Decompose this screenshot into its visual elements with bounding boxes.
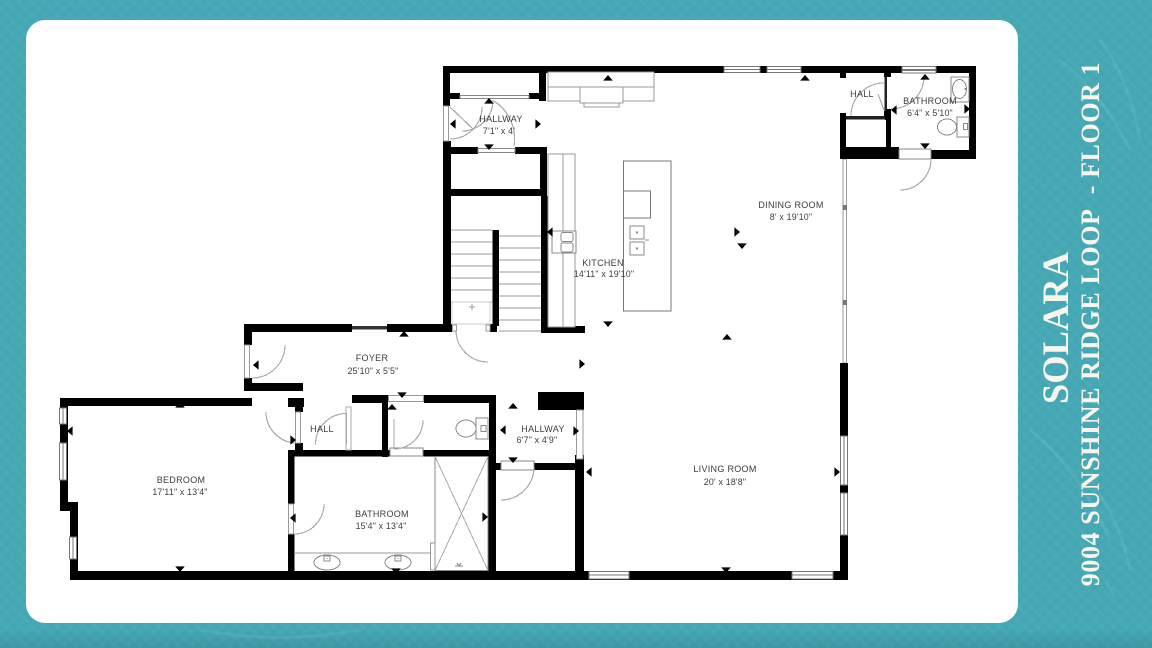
svg-text:HALL: HALL [850,89,874,99]
svg-text:KITCHEN: KITCHEN [582,258,624,268]
svg-text:HALLWAY: HALLWAY [521,424,564,434]
svg-text:9004 SUNSHINE RIDGE LOOP - FL: 9004 SUNSHINE RIDGE LOOP - FLOOR 1 [1076,62,1105,586]
svg-text:DINING ROOM: DINING ROOM [758,200,823,210]
svg-text:BATHROOM: BATHROOM [355,509,409,519]
svg-text:8' x 19'10": 8' x 19'10" [770,212,812,222]
svg-text:15'4" x 13'4": 15'4" x 13'4" [356,521,407,531]
svg-text:HALLWAY: HALLWAY [479,114,522,124]
svg-text:25'10" x 5'5": 25'10" x 5'5" [348,366,399,376]
svg-text:HALL: HALL [310,424,334,434]
svg-text:BEDROOM: BEDROOM [157,475,206,485]
svg-text:7'1" x 4': 7'1" x 4' [483,126,515,136]
svg-text:LIVING ROOM: LIVING ROOM [693,464,756,474]
svg-text:FOYER: FOYER [356,353,389,363]
svg-text:6'4" x 5'10": 6'4" x 5'10" [907,108,953,118]
svg-text:14'11" x 19'10": 14'11" x 19'10" [574,269,634,279]
svg-text:SOLARA: SOLARA [1035,251,1076,404]
svg-text:20' x 18'8": 20' x 18'8" [704,477,746,487]
svg-text:BATHROOM: BATHROOM [903,96,957,106]
svg-text:17'11" x 13'4": 17'11" x 13'4" [152,487,207,497]
svg-text:6'7" x 4'9": 6'7" x 4'9" [517,435,558,445]
